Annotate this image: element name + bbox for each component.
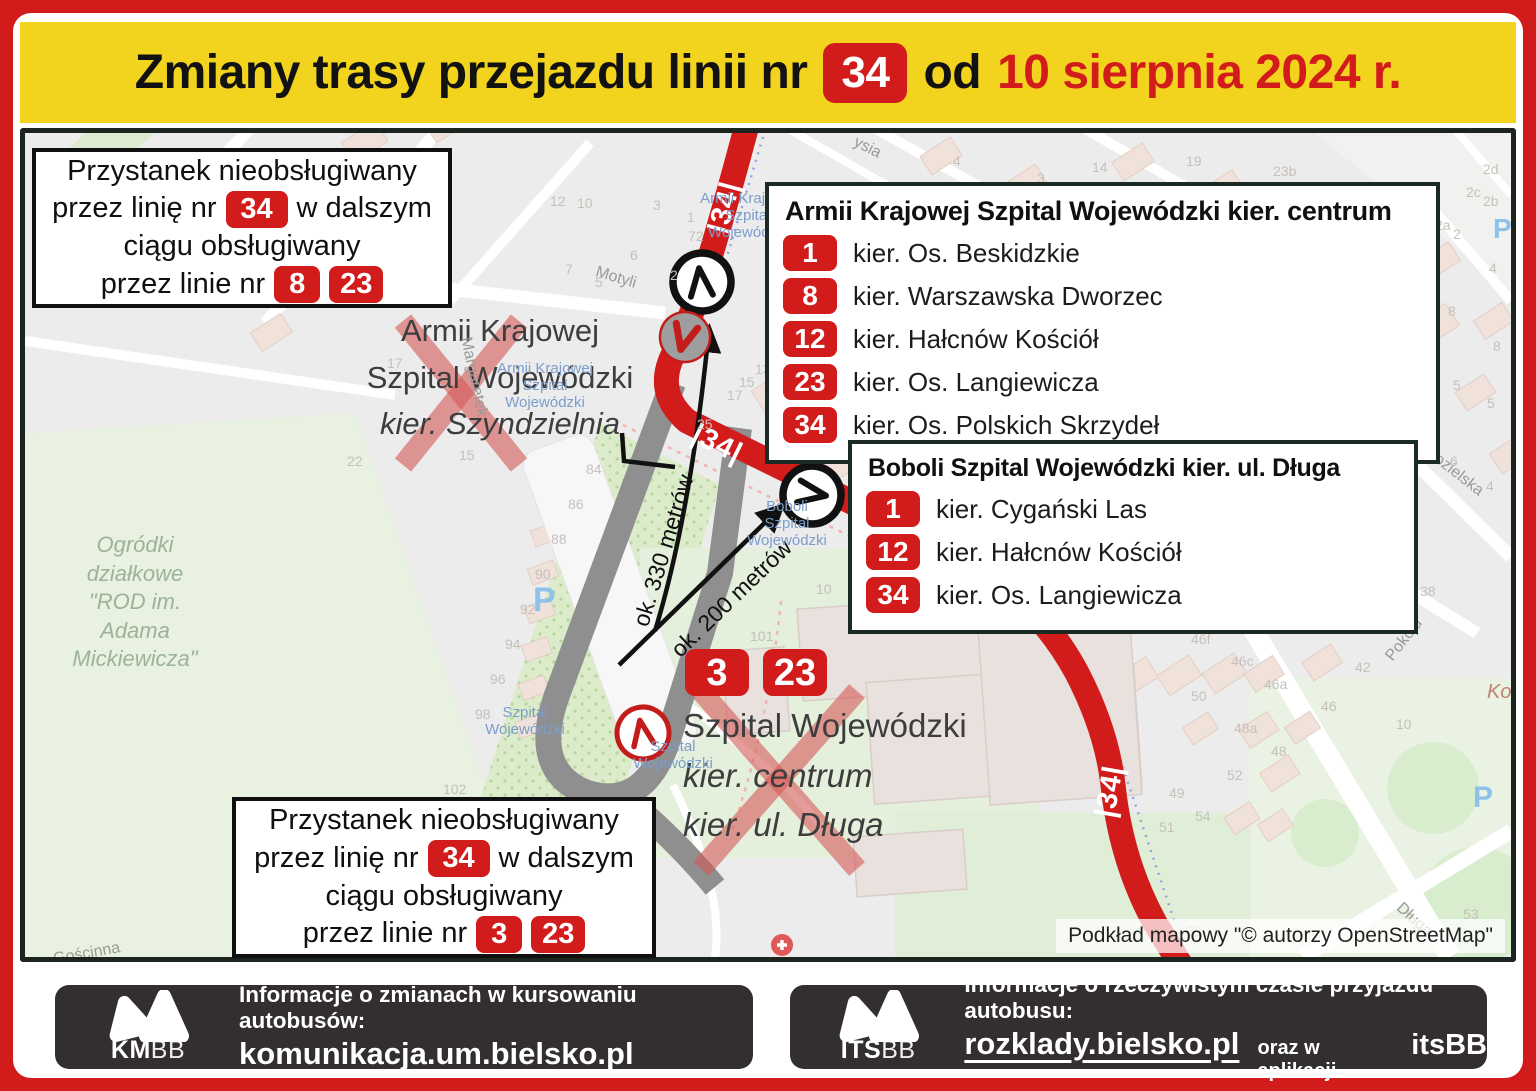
line-badge: 23 [531,916,585,953]
poster-root: { "colors": {"accent_red":"#d21b1b","hea… [0,0,1536,1091]
header-date: 10 sierpnia 2024 r. [997,45,1401,100]
header-title-prefix: Zmiany trasy przejazdu linii nr [135,45,808,100]
stop-destination: kier. Os. Langiewicza [936,580,1182,611]
boboli-stop-box: Boboli Szpital Wojewódzki kier. ul. Dług… [848,440,1418,634]
footer-left-link[interactable]: komunikacja.um.bielsko.pl [239,1036,634,1071]
stop-destination: kier. Os. Beskidzkie [853,238,1080,269]
map-attribution: Podkład mapowy "© autorzy OpenStreetMap" [1056,919,1505,953]
stop-row: 12kier. Hałcnów Kościół [783,321,1422,357]
line-badge: 34 [783,407,837,443]
footer-right-line1: Informacje o rzeczywistym czasie przyjaz… [964,972,1487,1024]
line-badge: 12 [783,321,837,357]
footer-right-app: itsBB [1411,1029,1487,1062]
stop-destination: kier. Hałcnów Kościół [853,324,1099,355]
armii-stop-box: Armii Krajowej Szpital Wojewódzki kier. … [765,182,1440,464]
notice-top-l4a: przez linie nr [101,266,265,304]
line-badge: 1 [866,491,920,527]
notice-top-l2b: w dalszym [297,190,432,228]
stop-row: 8kier. Warszawska Dworzec [783,278,1422,314]
notice-box-bottom: Przystanek nieobsługiwany przez linię nr… [232,797,656,958]
stop-destination: kier. Warszawska Dworzec [853,281,1163,312]
notice-bottom-l3: ciągu obsługiwany [326,878,563,916]
notice-bottom-l2a: przez linię nr [254,840,418,878]
notice-bottom-l1: Przystanek nieobsługiwany [269,802,619,840]
footer-left: KMBB Informacje o zmianach w kursowaniu … [55,985,753,1069]
stop-row: 12kier. Hałcnów Kościół [866,534,1400,570]
line-badge: 8 [783,278,837,314]
itsbb-logo-icon [820,990,936,1042]
kmbb-logo-bb: BB [151,1036,185,1064]
notice-bottom-l2b: w dalszym [499,840,634,878]
footer-left-text: Informacje o zmianach w kursowaniu autob… [239,982,753,1072]
line-badge: 23 [783,364,837,400]
line-badge: 3 [476,916,522,953]
footer-right-text: Informacje o rzeczywistym czasie przyjaz… [964,972,1487,1083]
line-badge: 34 [866,577,920,613]
notice-bottom-l4a: przez linie nr [303,915,467,953]
stop-row: 23kier. Os. Langiewicza [783,364,1422,400]
stop-destination: kier. Cygański Las [936,494,1147,525]
kmbb-logo: KMBB [85,990,211,1065]
footer-right-link[interactable]: rozklady.bielsko.pl [964,1026,1239,1062]
armii-stop-rows: 1kier. Os. Beskidzkie8kier. Warszawska D… [783,235,1422,443]
header-banner: Zmiany trasy przejazdu linii nr 34 od 10… [20,22,1516,123]
line-badge: 12 [866,534,920,570]
parking-icon: P [1473,781,1493,815]
boboli-stop-rows: 1kier. Cygański Las12kier. Hałcnów Kości… [866,491,1400,613]
itsbb-logo-bb: BB [881,1036,915,1064]
kmbb-logo-km: KM [111,1036,151,1064]
stop-row: 1kier. Os. Beskidzkie [783,235,1422,271]
armii-stop-title: Armii Krajowej Szpital Wojewódzki kier. … [785,196,1422,227]
itsbb-logo: ITSBB [820,990,936,1065]
footer-right-mid: oraz w aplikacji [1257,1037,1401,1083]
stop-destination: kier. Os. Langiewicza [853,367,1099,398]
stop-row: 34kier. Os. Polskich Skrzydeł [783,407,1422,443]
line-34-badge: 34 [823,43,907,103]
stop-destination: kier. Hałcnów Kościół [936,537,1182,568]
line-badge: 23 [329,266,383,303]
notice-top-l3: ciągu obsługiwany [124,228,361,266]
line-badge: 8 [274,266,320,303]
notice-top-l2a: przez linię nr [52,190,216,228]
stop-row: 1kier. Cygański Las [866,491,1400,527]
line-badge: 1 [783,235,837,271]
parking-icon: P [533,581,556,620]
itsbb-logo-its: ITS [841,1036,881,1064]
notice-bottom-badge-34: 34 [428,840,490,877]
parking-icon: P [1493,213,1512,245]
kmbb-logo-text: KMBB [111,1036,185,1065]
notice-top-l1: Przystanek nieobsługiwany [67,153,417,191]
stop-destination: kier. Os. Polskich Skrzydeł [853,410,1159,441]
boboli-stop-title: Boboli Szpital Wojewódzki kier. ul. Dług… [868,454,1400,483]
notice-box-top: Przystanek nieobsługiwany przez linię nr… [32,148,452,308]
itsbb-logo-text: ITSBB [841,1036,916,1065]
notice-top-badges: 823 [274,266,383,303]
header-title-mid: od [923,45,981,100]
kmbb-logo-icon [90,990,206,1042]
stop-row: 34kier. Os. Langiewicza [866,577,1400,613]
notice-bottom-badges: 323 [476,916,585,953]
footer-left-line1: Informacje o zmianach w kursowaniu autob… [239,982,753,1034]
notice-top-badge-34: 34 [226,191,288,228]
footer-right: ITSBB Informacje o rzeczywistym czasie p… [790,985,1487,1069]
